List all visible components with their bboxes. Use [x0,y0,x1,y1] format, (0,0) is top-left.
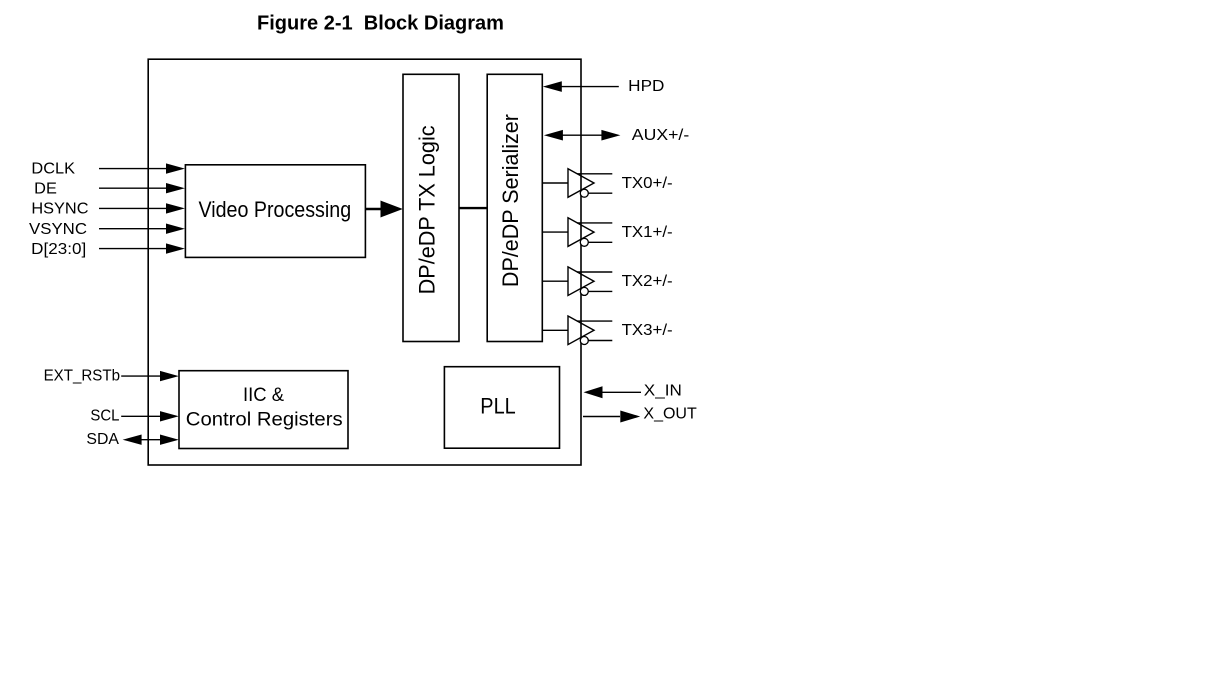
svg-text:DCLK: DCLK [31,161,75,178]
svg-text:SCL: SCL [90,408,119,425]
svg-text:HSYNC: HSYNC [31,201,88,218]
svg-text:SDA: SDA [86,431,119,448]
svg-text:DE: DE [34,181,57,198]
svg-text:IIC &: IIC & [243,384,284,406]
svg-text:TX1+/-: TX1+/- [622,224,673,241]
svg-text:PLL: PLL [480,394,515,419]
svg-text:Video Processing: Video Processing [198,197,351,222]
svg-text:DP/eDP TX Logic: DP/eDP TX Logic [415,125,440,294]
svg-text:AUX+/-: AUX+/- [632,127,689,144]
svg-text:HPD: HPD [628,78,664,95]
svg-text:EXT_RSTb: EXT_RSTb [44,367,121,384]
svg-text:TX0+/-: TX0+/- [622,175,673,192]
svg-text:TX2+/-: TX2+/- [622,273,673,290]
svg-text:VSYNC: VSYNC [29,221,87,238]
svg-text:Control Registers: Control Registers [186,409,343,431]
svg-text:TX3+/-: TX3+/- [622,322,673,339]
svg-text:X_OUT: X_OUT [643,406,697,423]
svg-text:Figure 2-1 Block Diagram: Figure 2-1 Block Diagram [257,12,504,34]
svg-text:X_IN: X_IN [644,383,682,400]
svg-text:D[23:0]: D[23:0] [31,241,86,258]
svg-text:DP/eDP Serializer: DP/eDP Serializer [498,114,523,287]
